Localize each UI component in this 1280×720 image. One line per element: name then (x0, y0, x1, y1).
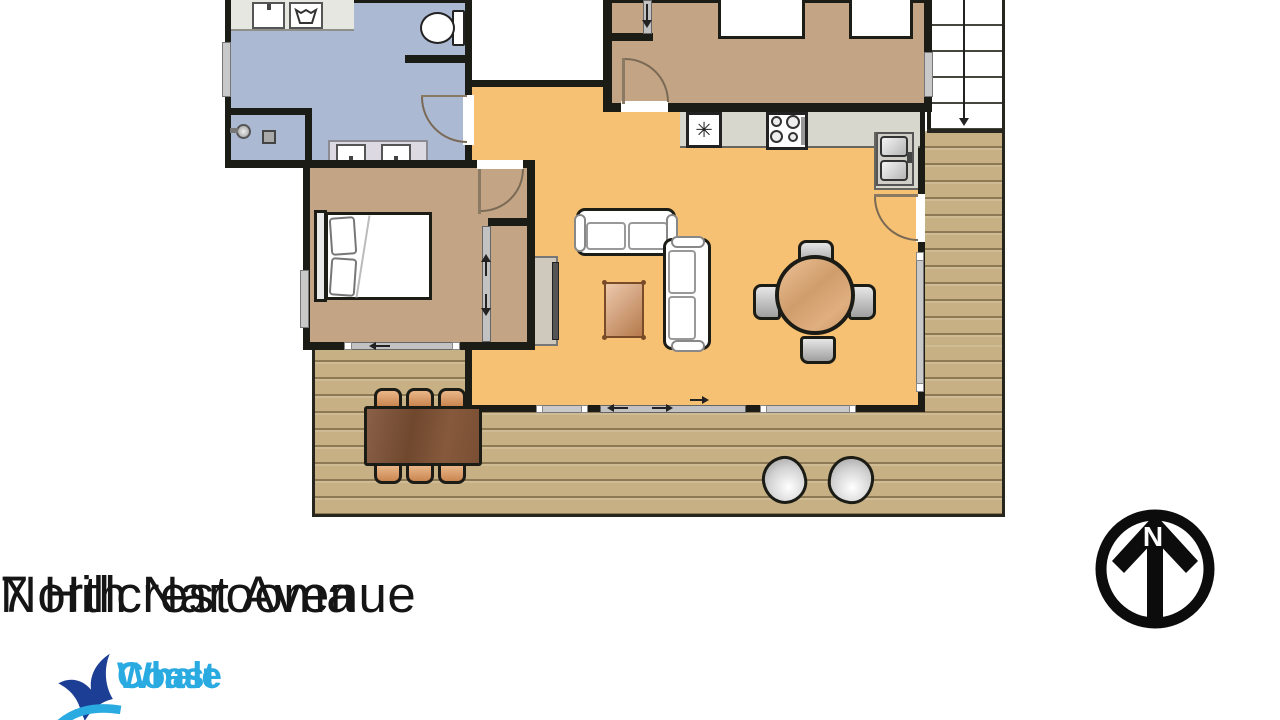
kitchen-faucet-icon (907, 152, 912, 163)
window-cap (849, 405, 856, 413)
burner-icon (786, 115, 800, 129)
window-cap (916, 252, 924, 261)
kitchen-sink-basin-icon (880, 136, 908, 157)
closet-arrow-line (485, 294, 487, 308)
bedroom2-window (300, 270, 309, 328)
bedroom1-bed-icon (718, 0, 805, 39)
logo-word-coast: Coast (117, 658, 215, 694)
window-cap (536, 405, 543, 413)
shower-drain-icon (262, 130, 276, 144)
slider-arrow-line (690, 399, 702, 401)
slider-arrow-left-icon (369, 342, 376, 350)
bedroom2-closet-sliding-door (482, 226, 491, 342)
closet-arrow-line (485, 262, 487, 276)
sofa-cushion (668, 250, 696, 294)
rug-corner (641, 335, 646, 340)
compass-n-label: N (1143, 521, 1163, 552)
window-cap (916, 383, 924, 392)
closet-arrow-up-icon (481, 254, 491, 262)
fridge-icon: ✳ (686, 112, 722, 148)
slider-arrow-line (614, 407, 628, 409)
slider-arrow-line (652, 407, 666, 409)
shower-wall-right (305, 108, 312, 168)
stairs (927, 0, 1005, 131)
outdoor-chair-icon (438, 463, 466, 484)
sofa-cushion (586, 222, 626, 250)
sofa-cushion (668, 296, 696, 340)
living-window-south2 (760, 405, 856, 413)
stairs-down-arrow-icon (959, 118, 969, 126)
rug-corner (602, 335, 607, 340)
burner-icon (770, 130, 783, 143)
window-cap (760, 405, 767, 413)
toilet-bowl-icon (420, 12, 455, 44)
stairs-direction-line (963, 0, 965, 120)
sofa-armrest (671, 236, 705, 248)
outdoor-table-icon (364, 406, 482, 466)
slider-arrow-right-icon (666, 404, 673, 412)
tub-glyph-icon (294, 6, 318, 25)
burner-icon (771, 116, 782, 127)
bedroom2-deck-sliding-door (344, 342, 460, 350)
shower-arm-icon (230, 128, 238, 133)
outdoor-chair-icon (406, 463, 434, 484)
living-window-east (916, 252, 924, 392)
laundry-sink-faucet-icon (267, 4, 271, 10)
slider-arrow-line (376, 345, 390, 347)
dining-table-icon (775, 255, 855, 335)
bed-pillow-icon (329, 216, 358, 256)
bathroom-window (222, 42, 231, 97)
deck-right-strip (925, 131, 1005, 353)
bedroom1-window (924, 52, 933, 97)
bedroom1-door-gap (621, 101, 668, 112)
void-space (472, 0, 603, 87)
north-compass: N (1092, 506, 1218, 632)
stove-knobs-icon (801, 117, 805, 145)
slider-arrow-right-icon (702, 396, 709, 404)
sofa-armrest (574, 214, 586, 252)
slider-cap (452, 342, 460, 350)
outdoor-chair-icon (374, 463, 402, 484)
dining-chair-icon (800, 336, 836, 364)
shower-head-icon (236, 124, 251, 139)
bedroom1-bed2-icon (849, 0, 913, 39)
bedroom1-slider-arrow-icon (642, 20, 652, 28)
rug-icon (604, 282, 644, 338)
bedroom1-closet-wall (612, 33, 653, 41)
stairs-bottom-edge (927, 129, 1005, 133)
window-cap (581, 405, 588, 413)
kitchen-sink-basin-icon (880, 160, 908, 181)
burner-icon (788, 132, 798, 142)
bedroom2-door-gap (477, 160, 523, 169)
floor-plan-page: ✳ (0, 0, 1280, 720)
rug-corner (602, 280, 607, 285)
bed-pillow-icon (329, 257, 358, 297)
sofa-armrest (671, 340, 705, 352)
slider-arrow-left-icon (607, 404, 614, 412)
shower-wall-top (225, 108, 312, 115)
address-line-2: North Narooma (0, 556, 355, 634)
sofa-cushion (628, 222, 668, 250)
slider-cap (344, 342, 352, 350)
toilet-partition-wall (405, 55, 472, 63)
tv-screen-icon (552, 262, 559, 340)
bedroom2-closet-wall (488, 218, 535, 226)
closet-arrow-down-icon (481, 308, 491, 316)
rug-corner (641, 280, 646, 285)
